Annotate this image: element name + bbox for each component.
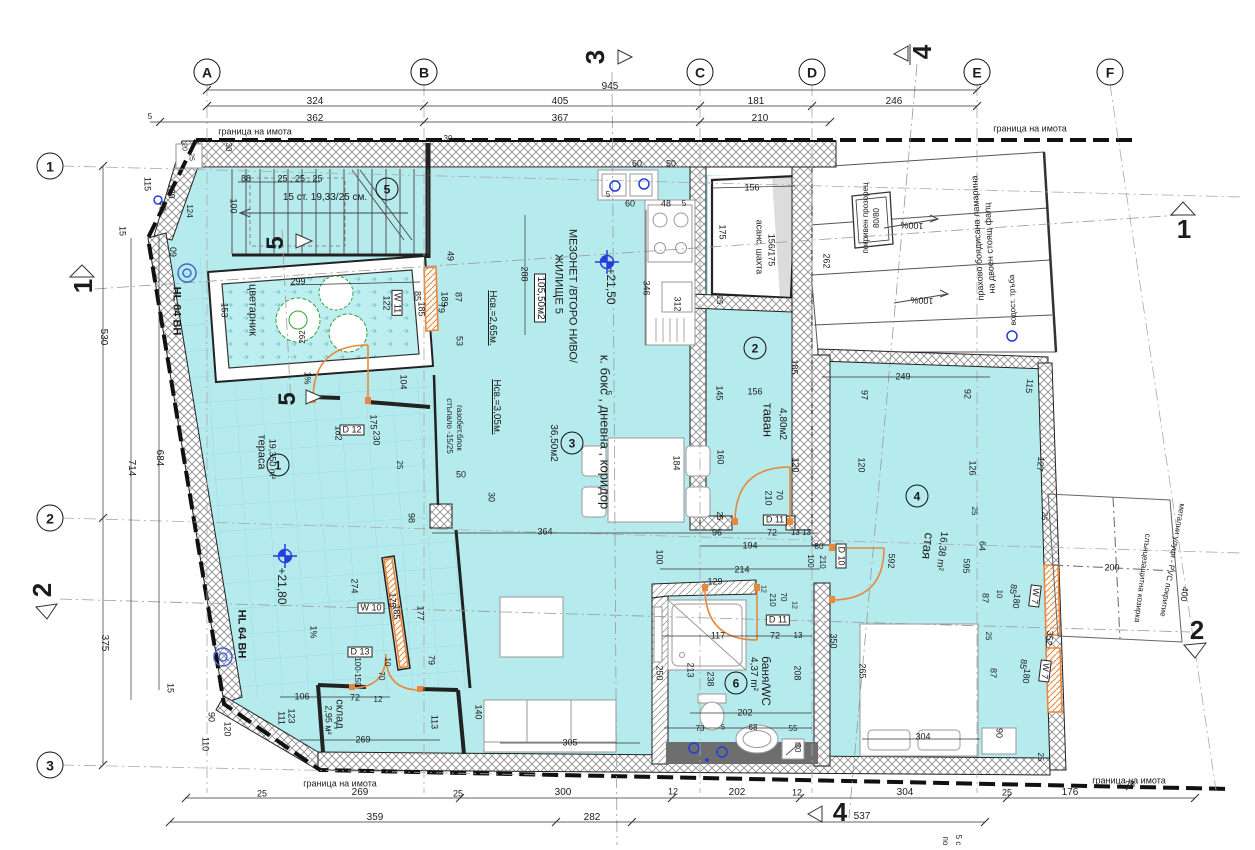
wc [700, 702, 724, 730]
floorplan-sheet: ABCDEF1233412124559453244051812463623672… [0, 0, 1255, 850]
chair [686, 487, 710, 517]
washbasin [736, 725, 778, 753]
floorplan-drawing [0, 0, 1255, 850]
pillow [918, 730, 960, 750]
coffee-table [500, 597, 563, 657]
elevator-shaft [708, 172, 800, 302]
stove [648, 205, 692, 262]
sofa [484, 700, 616, 752]
chair [582, 487, 606, 517]
chair [582, 446, 606, 476]
canopy [1048, 494, 1182, 642]
dining-table [608, 438, 684, 522]
roof-area [802, 152, 1056, 352]
parapet-cap [176, 144, 202, 168]
planter [208, 256, 433, 382]
chair [686, 446, 710, 476]
tv [654, 607, 662, 662]
nightstand [982, 728, 1016, 754]
pillow [868, 730, 910, 750]
